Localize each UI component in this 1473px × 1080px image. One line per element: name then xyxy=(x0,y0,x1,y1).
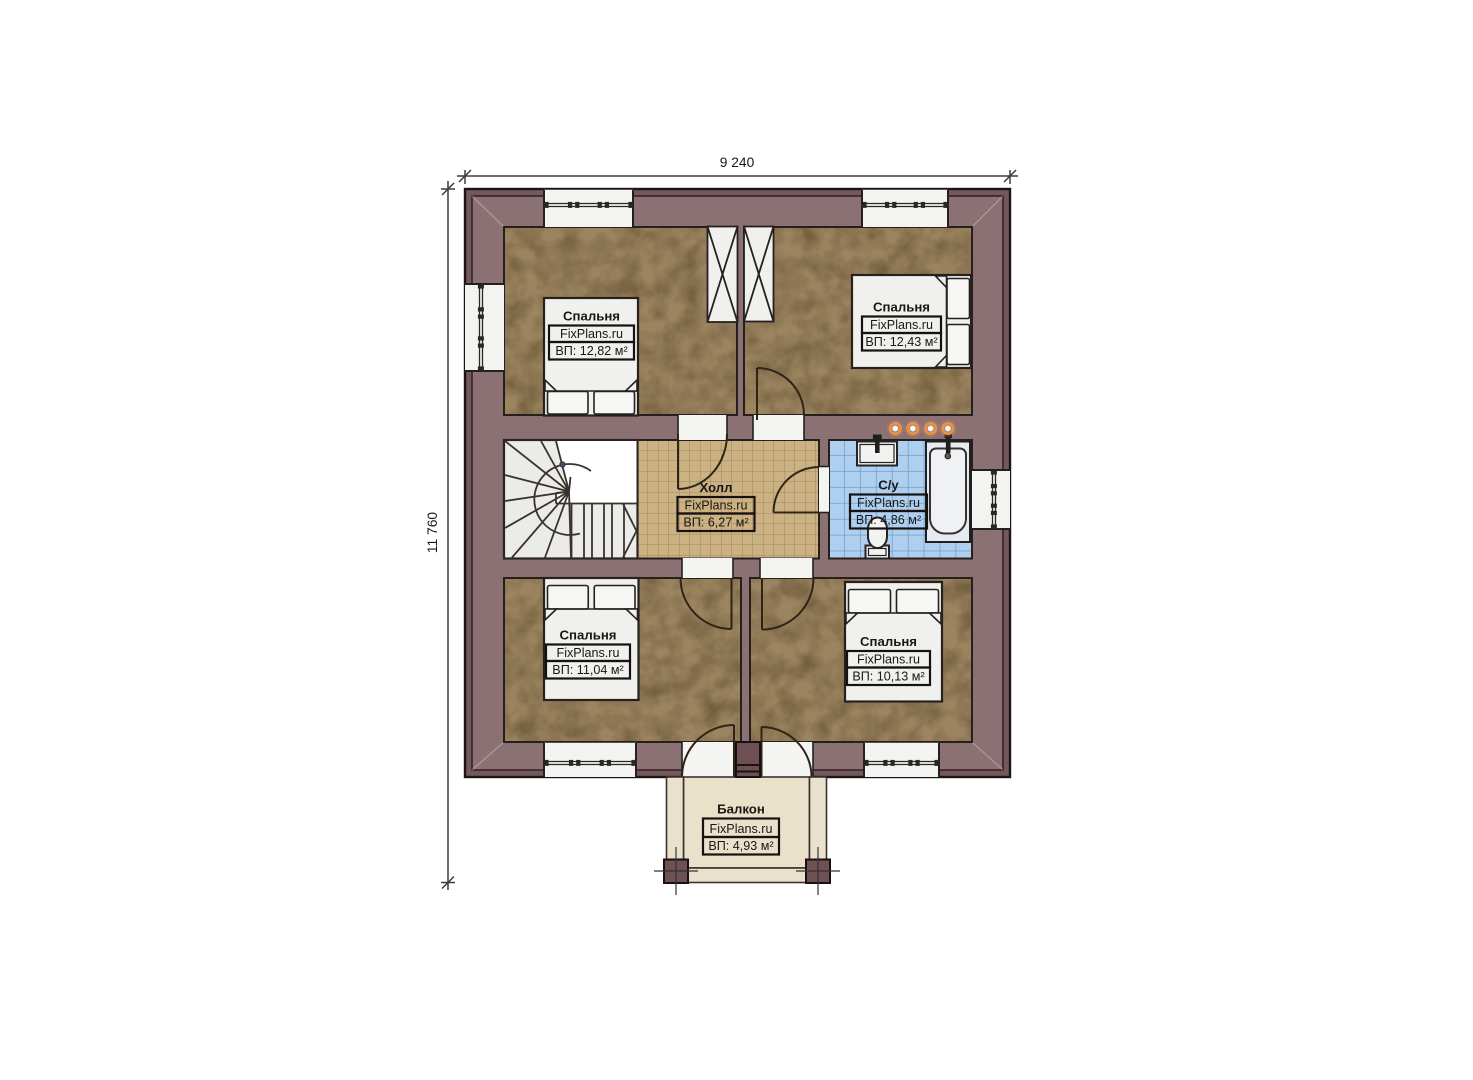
svg-text:Спальня: Спальня xyxy=(560,628,617,643)
svg-text:Холл: Холл xyxy=(699,480,732,495)
svg-text:ВП: 10,13 м²: ВП: 10,13 м² xyxy=(852,670,924,684)
svg-text:ВП: 4,93 м²: ВП: 4,93 м² xyxy=(708,839,773,853)
svg-text:ВП: 12,43 м²: ВП: 12,43 м² xyxy=(865,335,937,349)
svg-text:ВП: 6,27 м²: ВП: 6,27 м² xyxy=(683,516,748,530)
svg-text:Спальня: Спальня xyxy=(873,300,930,315)
svg-text:ВП: 12,82 м²: ВП: 12,82 м² xyxy=(555,344,627,358)
svg-text:FixPlans.ru: FixPlans.ru xyxy=(870,318,933,332)
svg-text:9 240: 9 240 xyxy=(720,155,755,170)
svg-text:ВП: 11,04 м²: ВП: 11,04 м² xyxy=(552,663,623,677)
svg-text:FixPlans.ru: FixPlans.ru xyxy=(685,499,748,513)
svg-text:С/у: С/у xyxy=(878,478,899,493)
svg-text:Балкон: Балкон xyxy=(717,802,765,817)
svg-text:FixPlans.ru: FixPlans.ru xyxy=(857,496,920,510)
svg-text:FixPlans.ru: FixPlans.ru xyxy=(710,822,773,836)
svg-text:FixPlans.ru: FixPlans.ru xyxy=(560,327,623,341)
svg-text:11 760: 11 760 xyxy=(425,512,440,554)
svg-text:FixPlans.ru: FixPlans.ru xyxy=(857,653,920,667)
svg-text:Спальня: Спальня xyxy=(563,309,620,324)
svg-text:Спальня: Спальня xyxy=(860,634,917,649)
svg-text:FixPlans.ru: FixPlans.ru xyxy=(557,646,620,660)
svg-text:ВП: 4,86 м²: ВП: 4,86 м² xyxy=(856,513,921,527)
